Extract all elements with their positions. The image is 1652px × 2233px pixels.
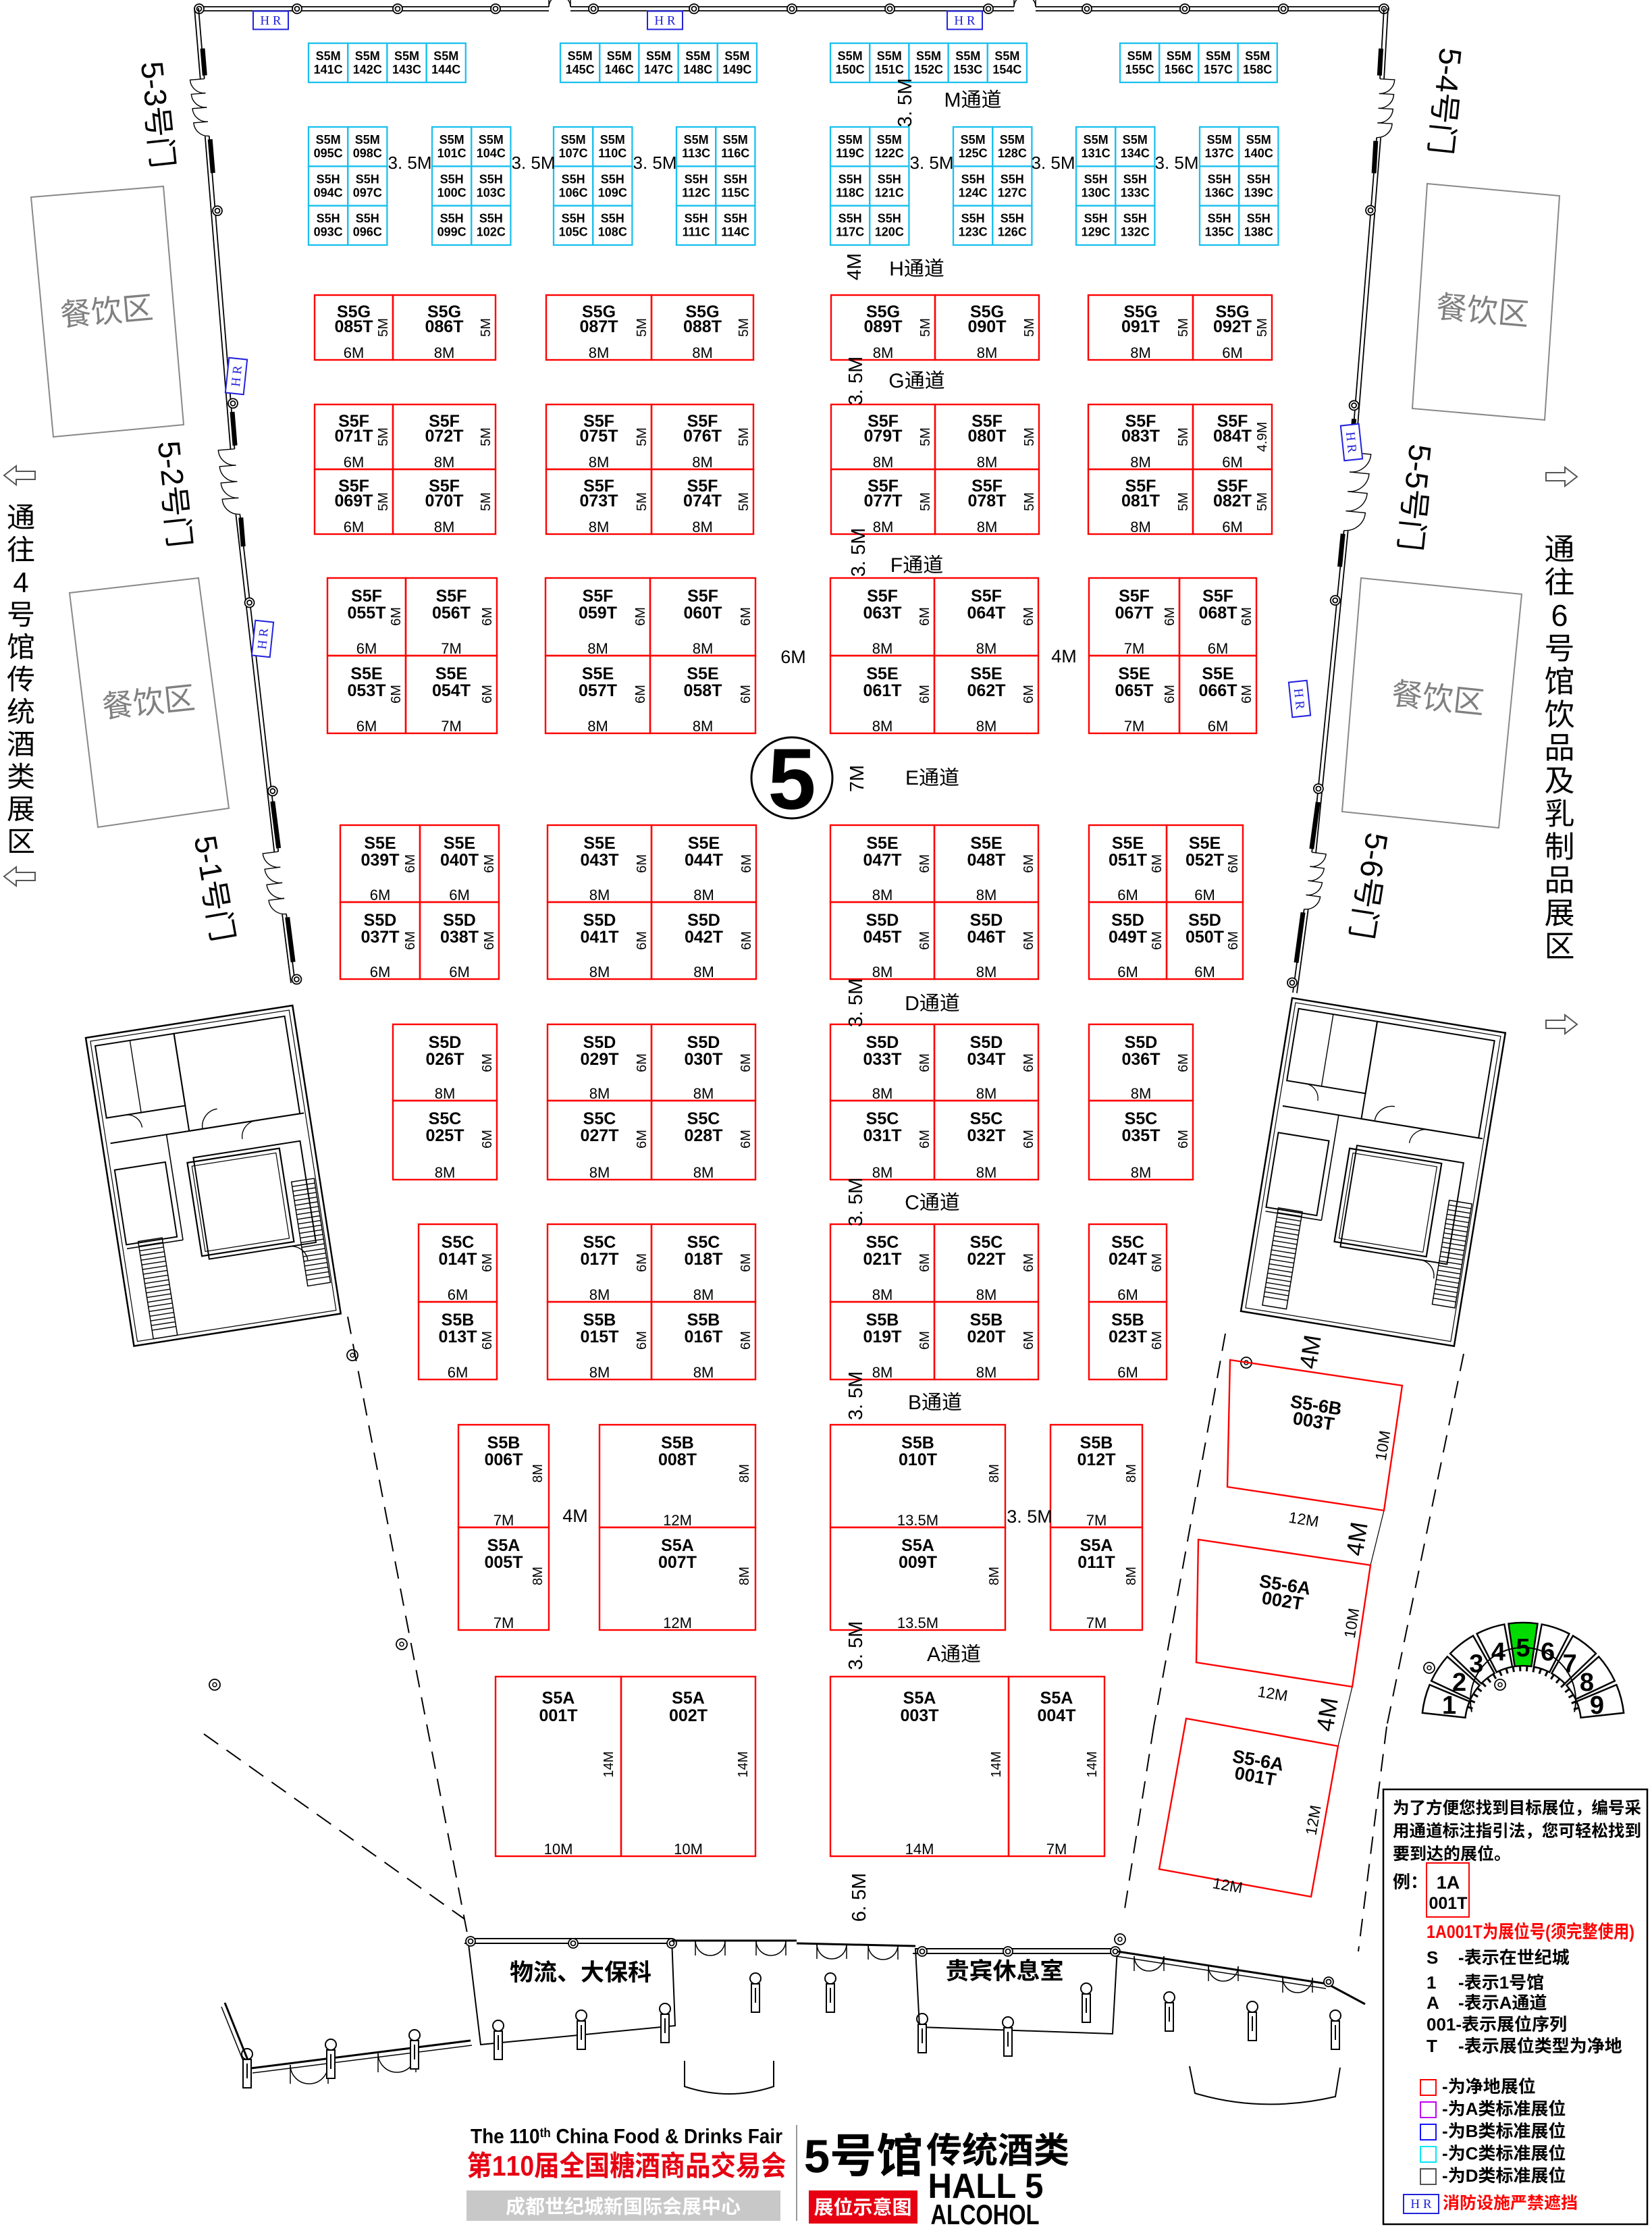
svg-text:002T: 002T [669,1706,708,1725]
svg-text:094C: 094C [314,186,343,199]
svg-text:S5M: S5M [723,133,748,147]
svg-text:8M: 8M [434,519,455,535]
svg-text:H R: H R [1343,431,1359,454]
svg-text:S5H: S5H [1123,172,1147,186]
svg-text:S5E: S5E [435,664,467,683]
svg-text:081T: 081T [1121,492,1160,510]
svg-text:6M: 6M [403,931,418,950]
svg-text:S5D: S5D [1125,1033,1158,1052]
svg-text:S5F: S5F [867,587,898,606]
svg-text:4: 4 [1491,1638,1506,1666]
svg-text:S5M: S5M [394,49,419,63]
svg-text:S5A: S5A [672,1689,705,1708]
svg-text:8M: 8M [693,1164,714,1181]
svg-text:6M: 6M [1021,1130,1036,1149]
svg-text:037T: 037T [361,928,400,947]
svg-text:S5C: S5C [429,1109,462,1128]
svg-text:048T: 048T [967,851,1006,870]
svg-text:S5H: S5H [601,212,624,226]
svg-text:133C: 133C [1121,186,1150,199]
svg-text:071T: 071T [335,427,373,446]
svg-text:6M: 6M [917,1053,932,1072]
svg-text:080T: 080T [968,427,1007,446]
svg-text:157C: 157C [1204,63,1233,76]
svg-text:8M: 8M [872,1286,893,1303]
svg-text:6M: 6M [739,1331,753,1350]
svg-text:052T: 052T [1185,851,1224,870]
svg-text:115C: 115C [721,186,749,199]
svg-text:001T: 001T [1429,1894,1468,1913]
svg-text:147C: 147C [644,63,673,76]
svg-text:6M: 6M [1150,931,1165,950]
svg-text:S5M: S5M [355,133,380,147]
svg-text:5M: 5M [635,427,649,446]
svg-text:8M: 8M [1130,454,1151,471]
svg-text:096C: 096C [353,226,382,239]
svg-text:146C: 146C [605,63,634,76]
svg-text:S5H: S5H [440,212,464,226]
svg-text:5M: 5M [737,318,751,337]
svg-text:8M: 8M [693,1286,714,1303]
svg-text:14M: 14M [1085,1752,1100,1778]
svg-text:S5B: S5B [487,1434,521,1452]
svg-text:127C: 127C [998,186,1027,199]
svg-text:6M: 6M [1240,685,1254,704]
svg-text:8M: 8M [977,344,998,361]
svg-text:S5M: S5M [961,133,986,147]
svg-text:8M: 8M [692,344,713,361]
svg-text:029T: 029T [581,1050,619,1069]
svg-text:082T: 082T [1213,492,1252,510]
svg-text:6M: 6M [482,931,497,950]
svg-text:015T: 015T [581,1328,619,1346]
svg-text:100C: 100C [437,186,467,199]
svg-text:6M: 6M [739,1130,753,1149]
svg-text:S5B: S5B [661,1434,694,1452]
svg-text:S5M: S5M [877,133,902,147]
svg-text:S5B: S5B [866,1311,899,1330]
svg-text:028T: 028T [685,1126,723,1145]
svg-text:S5M: S5M [439,133,464,147]
svg-text:030T: 030T [685,1050,723,1069]
svg-text:S5H: S5H [1001,172,1024,186]
svg-text:H R: H R [1291,688,1307,710]
svg-text:140C: 140C [1244,147,1273,160]
svg-text:5: 5 [1516,1634,1530,1662]
svg-text:035T: 035T [1122,1126,1161,1145]
svg-text:8M: 8M [589,519,610,535]
svg-text:107C: 107C [559,147,588,160]
svg-text:3: 3 [1469,1650,1483,1679]
svg-text:6M: 6M [1021,1053,1036,1072]
svg-text:8M: 8M [587,640,608,657]
svg-text:S5H: S5H [961,212,985,226]
svg-text:S5F: S5F [436,587,467,606]
svg-text:3. 5M: 3. 5M [388,153,431,173]
svg-text:S5M: S5M [1245,49,1270,63]
svg-text:5M: 5M [737,492,751,511]
svg-text:S5D: S5D [583,1033,616,1052]
svg-text:S5H: S5H [724,172,747,186]
svg-text:004T: 004T [1038,1706,1076,1725]
svg-text:5M: 5M [479,492,494,511]
svg-text:148C: 148C [683,63,712,76]
svg-text:062T: 062T [967,681,1006,700]
svg-text:056T: 056T [432,604,471,623]
svg-text:8M: 8M [737,1567,752,1585]
svg-text:149C: 149C [722,63,751,76]
svg-text:6M: 6M [1021,607,1036,626]
svg-text:S5F: S5F [351,587,382,606]
svg-text:073T: 073T [580,492,618,510]
svg-text:S5B: S5B [583,1311,616,1330]
svg-text:090T: 090T [968,317,1007,336]
svg-text:8M: 8M [434,454,455,471]
svg-text:128C: 128C [998,147,1027,160]
svg-text:S5M: S5M [316,49,341,63]
svg-text:S5D: S5D [866,911,899,930]
svg-text:6M: 6M [917,854,932,873]
svg-text:5M: 5M [737,427,751,446]
svg-text:136C: 136C [1205,186,1234,199]
svg-text:4M: 4M [1294,1333,1326,1371]
svg-text:H R: H R [255,627,271,650]
svg-text:5M: 5M [1255,318,1270,337]
svg-text:6M: 6M [739,607,753,626]
svg-text:6M: 6M [356,718,377,735]
svg-text:049T: 049T [1109,928,1147,947]
svg-text:013T: 013T [439,1328,477,1346]
svg-text:8M: 8M [589,1364,610,1381]
svg-text:150C: 150C [836,63,865,76]
svg-text:6M: 6M [1150,1331,1165,1350]
svg-text:089T: 089T [864,317,903,336]
svg-text:066T: 066T [1199,681,1237,700]
svg-text:6M: 6M [403,854,418,873]
svg-text:S5M: S5M [916,49,941,63]
svg-text:022T: 022T [967,1250,1006,1269]
svg-text:061T: 061T [863,681,902,700]
svg-text:047T: 047T [863,851,902,870]
svg-text:153C: 153C [953,63,982,76]
svg-text:S5H: S5H [685,172,708,186]
svg-text:S5C: S5C [1111,1233,1144,1252]
svg-text:069T: 069T [335,492,373,510]
svg-text:6M: 6M [739,685,753,704]
svg-text:8M: 8M [976,964,997,980]
svg-text:5M: 5M [1255,492,1270,511]
svg-text:S5H: S5H [479,172,503,186]
svg-text:114C: 114C [721,226,749,239]
svg-text:8M: 8M [1130,519,1151,535]
svg-text:8M: 8M [872,1085,893,1102]
svg-text:079T: 079T [864,427,903,446]
svg-text:12M: 12M [663,1614,692,1631]
svg-text:8M: 8M [693,1364,714,1381]
svg-text:S5B: S5B [442,1311,475,1330]
svg-text:125C: 125C [959,147,988,160]
svg-text:6M: 6M [448,1364,469,1381]
svg-text:032T: 032T [967,1126,1006,1145]
svg-text:S5H: S5H [961,172,985,186]
svg-text:5M: 5M [376,492,391,511]
svg-text:14M: 14M [989,1752,1004,1778]
svg-text:4M: 4M [1051,646,1077,666]
svg-text:S5C: S5C [866,1109,899,1128]
svg-text:014T: 014T [439,1250,477,1269]
svg-text:S5E: S5E [1112,834,1144,853]
svg-text:S5D: S5D [970,911,1003,930]
svg-text:154C: 154C [992,63,1021,76]
svg-text:S5H: S5H [317,212,340,226]
svg-text:054T: 054T [432,681,471,700]
svg-text:144C: 144C [431,63,460,76]
svg-text:S5F: S5F [687,587,718,606]
svg-text:097C: 097C [353,186,382,199]
svg-text:007T: 007T [658,1553,697,1572]
svg-text:S5H: S5H [878,212,901,226]
svg-text:012T: 012T [1077,1450,1116,1469]
svg-text:8M: 8M [692,519,713,535]
svg-text:S5D: S5D [970,1033,1003,1052]
svg-text:6M: 6M [480,607,495,626]
svg-text:5M: 5M [1022,427,1037,446]
svg-text:8M: 8M [872,718,893,735]
svg-text:5M: 5M [1176,427,1191,446]
svg-text:7M: 7M [441,640,462,657]
svg-text:010T: 010T [899,1450,937,1469]
svg-text:6M: 6M [917,685,932,704]
svg-text:6M: 6M [635,1053,649,1072]
svg-text:3. 5M: 3. 5M [845,357,867,406]
svg-text:S5M: S5M [568,49,593,63]
svg-text:8M: 8M [693,887,714,903]
svg-text:8M: 8M [434,344,455,361]
svg-text:6M: 6M [1222,454,1243,471]
svg-text:053T: 053T [348,681,386,700]
svg-text:H R: H R [654,14,675,28]
svg-text:S5D: S5D [443,911,476,930]
svg-text:050T: 050T [1185,928,1224,947]
svg-text:8M: 8M [435,1085,456,1102]
svg-text:8M: 8M [987,1464,1002,1483]
svg-text:S5M: S5M [646,49,671,63]
svg-text:S5D: S5D [583,911,616,930]
svg-text:6M: 6M [389,685,404,704]
svg-text:S5M: S5M [479,133,504,147]
svg-text:S5H: S5H [356,212,379,226]
svg-text:106C: 106C [559,186,588,199]
svg-text:S5B: S5B [1111,1311,1144,1330]
svg-text:023T: 023T [1109,1328,1147,1346]
svg-text:8M: 8M [435,1164,456,1181]
svg-text:S5M: S5M [607,49,632,63]
svg-text:5M: 5M [635,492,649,511]
svg-text:6M: 6M [917,1253,932,1272]
svg-text:138C: 138C [1244,226,1273,239]
svg-text:067T: 067T [1115,604,1154,623]
svg-text:S5E: S5E [970,664,1002,683]
svg-text:6M: 6M [480,1331,495,1350]
svg-text:12M: 12M [663,1512,692,1529]
svg-text:6M: 6M [739,1053,753,1072]
svg-text:041T: 041T [581,928,619,947]
svg-text:6M: 6M [1117,887,1138,903]
svg-text:S5M: S5M [1246,133,1271,147]
svg-text:8M: 8M [976,1085,997,1102]
svg-text:5M: 5M [376,427,391,446]
svg-text:6M: 6M [370,964,391,980]
svg-text:S5H: S5H [1247,172,1271,186]
svg-text:6M: 6M [1226,931,1241,950]
svg-text:S5E: S5E [688,834,720,853]
svg-text:6M: 6M [739,1253,753,1272]
svg-text:005T: 005T [485,1553,523,1572]
svg-text:14M: 14M [736,1752,751,1778]
svg-text:108C: 108C [598,226,627,239]
svg-text:S5E: S5E [866,834,898,853]
svg-text:S5B: S5B [901,1434,934,1452]
svg-text:102C: 102C [477,226,506,239]
svg-text:8M: 8M [1131,1164,1152,1181]
svg-text:6M: 6M [356,640,377,657]
svg-text:6M: 6M [1222,344,1243,361]
svg-text:8M: 8M [589,887,610,903]
svg-text:6M: 6M [480,685,495,704]
svg-text:5M: 5M [1022,492,1037,511]
svg-text:009T: 009T [899,1553,937,1572]
svg-text:142C: 142C [353,63,382,76]
svg-text:S5H: S5H [562,212,585,226]
svg-text:6M: 6M [1117,1364,1138,1381]
svg-text:S5D: S5D [687,1033,720,1052]
svg-text:14M: 14M [602,1752,616,1778]
svg-text:8M: 8M [692,454,713,471]
svg-text:S5A: S5A [542,1689,575,1708]
svg-text:8M: 8M [589,1286,610,1303]
svg-text:104C: 104C [477,147,506,160]
svg-text:5M: 5M [918,318,933,337]
svg-text:S5E: S5E [1189,834,1221,853]
svg-text:5M: 5M [635,318,649,337]
svg-text:S5D: S5D [1188,911,1221,930]
svg-text:6: 6 [1541,1638,1555,1666]
svg-text:060T: 060T [684,604,722,623]
svg-text:S5B: S5B [970,1311,1003,1330]
svg-text:021T: 021T [863,1250,902,1269]
svg-text:019T: 019T [863,1328,902,1346]
svg-text:6M: 6M [1163,685,1177,704]
svg-text:1A: 1A [1437,1872,1460,1893]
svg-text:S5M: S5M [1000,133,1025,147]
svg-text:S5H: S5H [601,172,624,186]
svg-text:S5A: S5A [1080,1536,1113,1555]
svg-text:9: 9 [1590,1691,1604,1720]
svg-text:137C: 137C [1205,147,1234,160]
svg-text:S5E: S5E [866,664,898,683]
svg-text:057T: 057T [579,681,617,700]
svg-text:H R: H R [954,14,975,28]
svg-text:S5H: S5H [685,212,708,226]
svg-text:S5M: S5M [685,49,710,63]
svg-text:118C: 118C [836,186,864,199]
svg-text:5M: 5M [376,318,391,337]
svg-text:8M: 8M [693,718,714,735]
svg-text:S5H: S5H [878,172,901,186]
svg-text:076T: 076T [683,427,722,446]
svg-text:113C: 113C [682,147,710,160]
svg-text:S5H: S5H [838,212,862,226]
svg-text:8M: 8M [589,1164,610,1181]
svg-text:S5M: S5M [838,133,863,147]
svg-text:3. 5M: 3. 5M [633,153,676,173]
svg-text:8M: 8M [873,344,894,361]
svg-text:6M: 6M [917,1130,932,1149]
svg-text:6M: 6M [1208,718,1229,735]
svg-text:S5M: S5M [877,49,902,63]
svg-text:034T: 034T [967,1050,1006,1069]
svg-text:070T: 070T [425,492,464,510]
svg-text:6. 5M: 6. 5M [849,1873,870,1922]
svg-text:S5F: S5F [971,587,1002,606]
svg-text:120C: 120C [875,226,904,239]
svg-text:S5H: S5H [1247,212,1271,226]
svg-text:068T: 068T [1199,604,1237,623]
svg-text:101C: 101C [437,147,467,160]
svg-text:8M: 8M [1130,344,1151,361]
svg-text:130C: 130C [1082,186,1111,199]
svg-text:6M: 6M [344,519,365,535]
svg-text:151C: 151C [875,63,904,76]
svg-text:075T: 075T [580,427,618,446]
svg-text:059T: 059T [579,604,617,623]
svg-text:8M: 8M [693,1085,714,1102]
svg-text:6M: 6M [635,1331,649,1350]
svg-text:S5C: S5C [687,1233,720,1252]
svg-text:3. 5M: 3. 5M [848,528,870,577]
svg-text:6M: 6M [449,887,470,903]
svg-text:8M: 8M [531,1464,545,1483]
svg-text:6M: 6M [1194,964,1215,980]
svg-text:S5A: S5A [487,1536,521,1555]
svg-text:8M: 8M [976,640,997,657]
svg-text:S5M: S5M [838,49,863,63]
svg-text:3. 5M: 3. 5M [909,153,953,173]
svg-text:6M: 6M [739,931,754,950]
svg-text:8M: 8M [873,454,894,471]
svg-text:13.5M: 13.5M [897,1512,938,1529]
svg-text:078T: 078T [968,492,1007,510]
svg-text:4M: 4M [844,253,865,280]
svg-text:3. 5M: 3. 5M [511,153,555,173]
svg-text:S5E: S5E [970,834,1002,853]
svg-text:039T: 039T [361,851,400,870]
svg-text:7M: 7M [494,1512,514,1529]
svg-text:044T: 044T [685,851,723,870]
svg-text:6M: 6M [1194,887,1215,903]
svg-text:3. 5M: 3. 5M [1007,1506,1053,1527]
svg-text:072T: 072T [425,427,464,446]
svg-text:S5C: S5C [442,1233,475,1252]
svg-text:7M: 7M [441,718,462,735]
svg-text:8M: 8M [587,718,608,735]
svg-text:3. 5M: 3. 5M [1031,153,1075,173]
svg-text:S5M: S5M [1207,133,1232,147]
svg-text:8M: 8M [987,1567,1002,1585]
svg-text:7M: 7M [847,765,868,792]
svg-text:S5M: S5M [1084,133,1109,147]
svg-text:038T: 038T [440,928,479,947]
